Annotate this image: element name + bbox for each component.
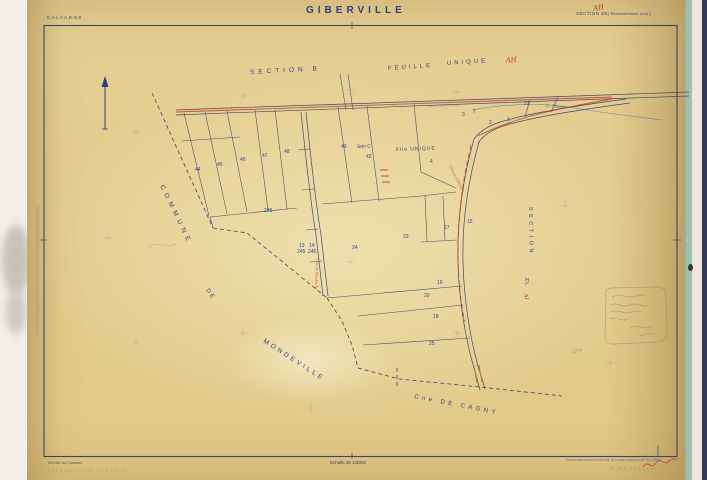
parcel-number: 3 [462, 112, 465, 118]
parcel-number: 245 [297, 249, 306, 255]
label-unique: UNIQUE [447, 58, 489, 67]
parcel-number: 15 [467, 219, 473, 225]
grid-cross [453, 329, 461, 337]
parcel-number: 23 [524, 101, 530, 107]
grid-cross [239, 329, 247, 337]
grid-cross [346, 86, 354, 94]
label-feuille: FEUILLE [388, 63, 434, 72]
label-de: DE [204, 288, 216, 302]
parcel-number: 23 [403, 234, 409, 240]
pencil-note-line [610, 304, 648, 306]
frame-border [44, 26, 677, 457]
grid-crosses [104, 86, 614, 412]
label-road-top: Ancien Chin de Caen [427, 103, 458, 108]
parcel-number: 17 [444, 225, 450, 231]
label-ai-red: AI [522, 292, 529, 301]
parcel-number: 42 [366, 154, 372, 160]
parcel-number: 24 [352, 245, 358, 251]
parcel-lines [182, 97, 558, 345]
label-commune: COMMUNE [158, 184, 193, 246]
label-mondeville: MONDEVILLE [262, 338, 326, 383]
parcel-number: 7 [473, 109, 476, 115]
pencil-ref-text: 13 H [571, 348, 583, 355]
pencil-note-line [610, 318, 628, 320]
map-labels: SECTION B FEUILLE UNIQUE AH Son C Flle U… [158, 55, 566, 417]
parcel-number: 45 [217, 162, 223, 168]
label-section-vertical: SECTION [527, 207, 534, 256]
curve-road-east [463, 142, 485, 389]
map-frame [40, 22, 681, 459]
parcel-number: 245 [264, 208, 273, 214]
label-c-vimont: C. Vimont [546, 104, 567, 111]
grid-cross [132, 338, 140, 346]
pencil-annotations: 13 H [148, 244, 677, 467]
grid-cross [239, 92, 247, 100]
parcel-number: 20 [424, 293, 430, 299]
footer-update-note: Remembrement exécuté et rendu exécutoire… [566, 457, 661, 462]
red-route-overlays [176, 97, 612, 383]
pencil-note-line [612, 295, 646, 297]
parcel-numbers: 4445464748494243272323241715201825192451… [195, 101, 530, 347]
strip-verticals [184, 110, 287, 216]
grid-cross [132, 128, 140, 136]
curve-road-west [458, 139, 480, 390]
parcel-number: 47 [262, 153, 268, 159]
strip-cross-line [182, 137, 240, 227]
pencil-note-outline [605, 287, 667, 344]
parcel-number: 1 [507, 117, 510, 123]
parcel-number: 246 [308, 249, 317, 255]
strip-band-line [210, 192, 456, 217]
mondeville-boundary-4 [327, 298, 358, 368]
grid-cross [606, 359, 614, 367]
crossroad-north [340, 74, 353, 110]
pencil-faded-mark [148, 244, 176, 247]
orange-road-stub [474, 365, 482, 383]
footer-reproduction: REPRODUCTION INTERDITE [48, 468, 127, 473]
label-son-c: Son C [357, 144, 371, 150]
frame-ticks [40, 22, 681, 459]
east-strip-verticals [338, 104, 456, 203]
pencil-signature [630, 326, 654, 336]
grid-cross [453, 88, 461, 96]
grid-cross [104, 234, 112, 242]
label-road-ns: Chin de Mondeville [314, 258, 320, 290]
footer-scale: Echelle de 1/2000 [330, 460, 367, 465]
pencil-note-line [610, 311, 641, 313]
mid-parcel-lines [421, 196, 457, 242]
label-zl: ZL [523, 278, 530, 287]
mondeville-boundary-1 [152, 93, 213, 228]
parcel-number: 4 [430, 159, 433, 165]
scanned-cadastral-map: CALVADOS GIBERVILLE SECTION ZK ( Remembr… [0, 0, 707, 480]
label-cagny: Cne DE CAGNY [414, 394, 500, 416]
parcel-number: 2 [489, 120, 492, 126]
cagny-boundary [358, 368, 562, 396]
map-drawing: SECTION B FEUILLE UNIQUE AH Son C Flle U… [0, 0, 707, 480]
parcel-number: 25 [429, 341, 435, 347]
mondeville-boundary-2 [213, 228, 247, 233]
parcel-number: 19 [437, 280, 443, 286]
north-arrow [102, 76, 109, 129]
grid-cross [346, 258, 354, 266]
label-section-b: SECTION B [250, 65, 321, 76]
label-road-diag: Chin de Giberville [448, 164, 466, 193]
footer-faded-title: GIBERVILLE [610, 466, 656, 471]
parcel-number: 49 [341, 144, 347, 150]
parcel-number: 18 [433, 314, 439, 320]
parcel-number: 46 [240, 157, 246, 163]
grid-cross [307, 404, 315, 412]
footer-service: Service du Cadastre [48, 461, 82, 465]
footer: Service du Cadastre REPRODUCTION INTERDI… [48, 457, 661, 473]
parcel-number: 44 [195, 167, 201, 173]
grid-cross [561, 202, 569, 210]
label-flle-unique: Flle UNIQUE [396, 146, 436, 153]
red-culvert-marks [380, 170, 390, 182]
north-arrow-head [102, 76, 109, 87]
label-ah-red: AH [504, 55, 518, 65]
parcel-number: 48 [284, 149, 290, 155]
